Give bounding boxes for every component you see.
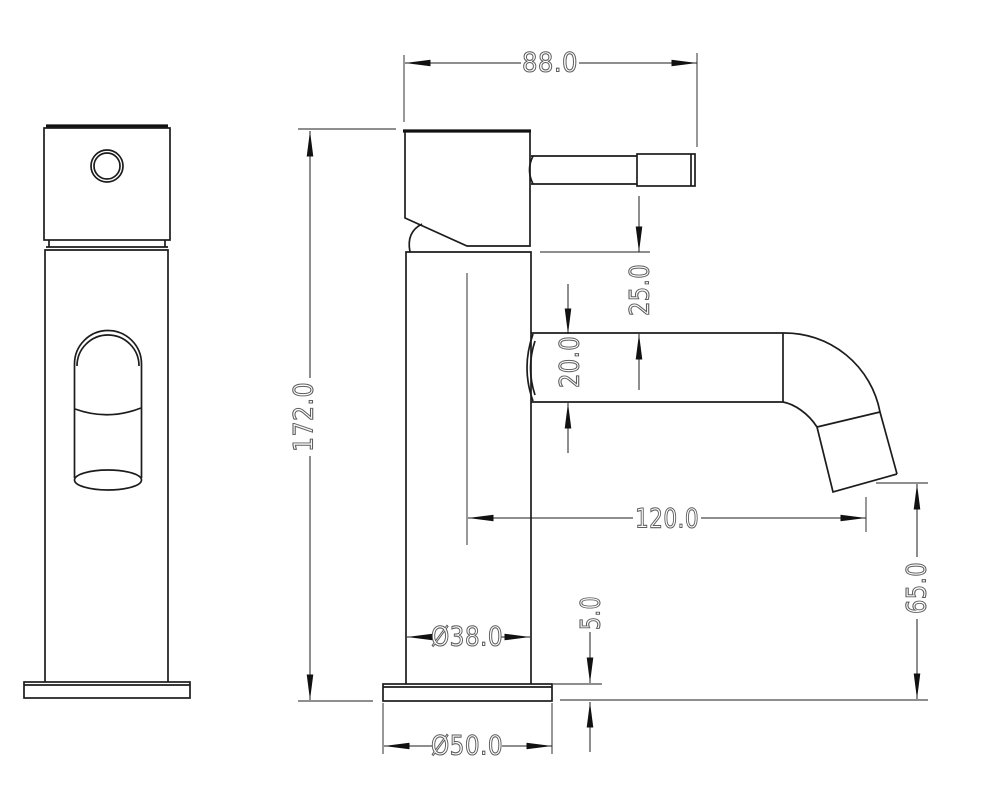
front-spout-arch-inner (77, 335, 139, 366)
side-head (405, 132, 530, 246)
front-button-outer (91, 150, 123, 182)
dim-20-label: 20.0 (555, 336, 586, 388)
dim-overall-height: 172.0 (289, 129, 397, 701)
side-spout-joint-line (817, 412, 880, 427)
dim-172-label: 172.0 (289, 382, 320, 452)
dim-body-diameter: Ø38.0 (407, 622, 530, 653)
front-button-inner (94, 153, 120, 179)
side-lever (531, 156, 637, 184)
dim-5-label: 5.0 (576, 596, 607, 630)
front-body (45, 250, 168, 682)
side-knurl-grip (637, 154, 695, 186)
dim-50-label: Ø50.0 (431, 731, 503, 762)
dim-65-label: 65.0 (902, 562, 933, 614)
dim-120-label: 120.0 (635, 504, 699, 535)
faucet-technical-drawing: 88.0 172.0 25.0 20.0 120.0 (0, 0, 1000, 800)
drawing-svg: 88.0 172.0 25.0 20.0 120.0 (0, 0, 1000, 800)
side-spout-elbow-inner (783, 402, 817, 427)
dim-25-label: 25.0 (625, 264, 656, 316)
side-spout-outlet (817, 427, 897, 492)
dim-88-label: 88.0 (522, 48, 578, 79)
dim-outlet-height: 65.0 (560, 483, 933, 700)
dim-38-label: Ø38.0 (431, 622, 503, 653)
side-view (383, 131, 897, 701)
front-spout-waterline (75, 408, 141, 415)
front-spout-arch-outer (75, 331, 142, 478)
front-joint (46, 240, 168, 247)
side-spout-elbow-outer (783, 333, 897, 474)
dim-spout-diameter: 20.0 (555, 284, 586, 453)
dimension-annotations: 88.0 172.0 25.0 20.0 120.0 (289, 48, 933, 762)
side-head-corner-arc (409, 224, 422, 252)
front-head (44, 128, 170, 240)
dim-base-diameter: Ø50.0 (383, 703, 552, 762)
dim-spout-reach: 120.0 (467, 273, 866, 545)
dim-base-thickness: 5.0 (553, 596, 607, 752)
side-body (406, 252, 531, 684)
front-view (24, 126, 190, 698)
dim-65-extension-lines (560, 483, 928, 700)
front-spout-outlet-ellipse (75, 470, 142, 490)
